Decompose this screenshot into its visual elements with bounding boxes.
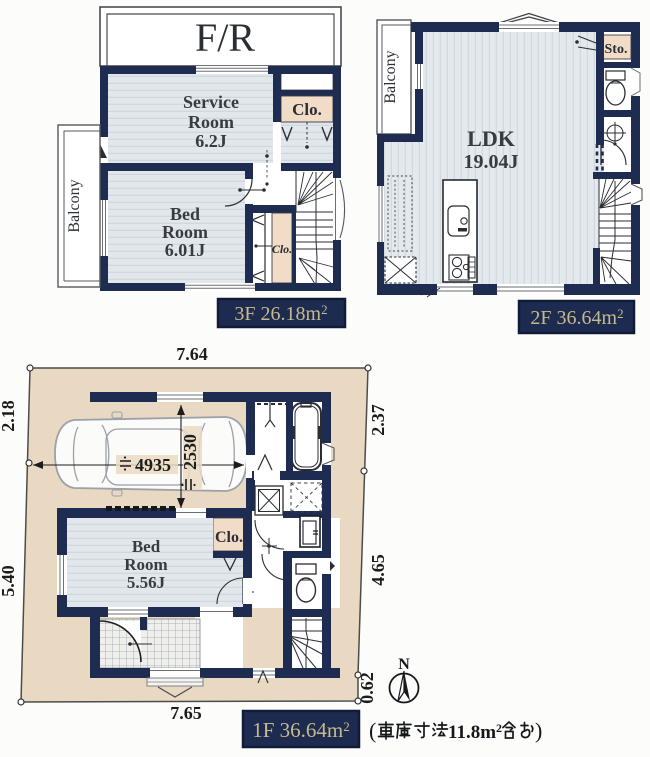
svg-text:6.2J: 6.2J bbox=[195, 131, 227, 151]
svg-text:Clo.: Clo. bbox=[272, 242, 292, 256]
svg-text:N: N bbox=[398, 656, 410, 673]
svg-text:Clo.: Clo. bbox=[215, 529, 243, 546]
svg-text:2.37: 2.37 bbox=[368, 404, 388, 436]
svg-text:2530: 2530 bbox=[180, 434, 200, 470]
svg-text:7.65: 7.65 bbox=[170, 703, 202, 723]
svg-text:7.64: 7.64 bbox=[176, 344, 208, 364]
svg-text:Service: Service bbox=[183, 92, 239, 112]
svg-text:4935: 4935 bbox=[135, 455, 171, 475]
svg-text:Room: Room bbox=[124, 555, 167, 574]
svg-text:LDK: LDK bbox=[467, 126, 515, 151]
svg-text:Sto.: Sto. bbox=[605, 42, 628, 57]
svg-text:Bed: Bed bbox=[170, 204, 200, 224]
svg-text:4.65: 4.65 bbox=[368, 554, 388, 586]
svg-text:Balcony: Balcony bbox=[382, 50, 399, 103]
svg-text:6.01J: 6.01J bbox=[165, 240, 206, 260]
svg-text:5.40: 5.40 bbox=[0, 565, 18, 597]
svg-text:1F 36.64m2: 1F 36.64m2 bbox=[252, 718, 350, 742]
svg-text:0.62: 0.62 bbox=[357, 672, 377, 704]
svg-text:3F 26.18m2: 3F 26.18m2 bbox=[234, 302, 327, 325]
svg-text:11.8m2: 11.8m2 bbox=[448, 721, 502, 743]
svg-text:F/R: F/R bbox=[195, 15, 255, 60]
svg-text:2.18: 2.18 bbox=[0, 400, 18, 432]
svg-text:5.56J: 5.56J bbox=[127, 573, 166, 592]
svg-text:Clo.: Clo. bbox=[292, 100, 322, 119]
svg-text:2F 36.64m2: 2F 36.64m2 bbox=[530, 306, 623, 329]
svg-text:Room: Room bbox=[162, 222, 208, 242]
svg-text:(: ( bbox=[369, 718, 376, 743]
svg-text:19.04J: 19.04J bbox=[464, 151, 519, 173]
svg-text:Room: Room bbox=[188, 112, 234, 132]
svg-text:Bed: Bed bbox=[132, 537, 161, 556]
svg-text:): ) bbox=[535, 718, 542, 743]
svg-text:Balcony: Balcony bbox=[66, 179, 83, 232]
